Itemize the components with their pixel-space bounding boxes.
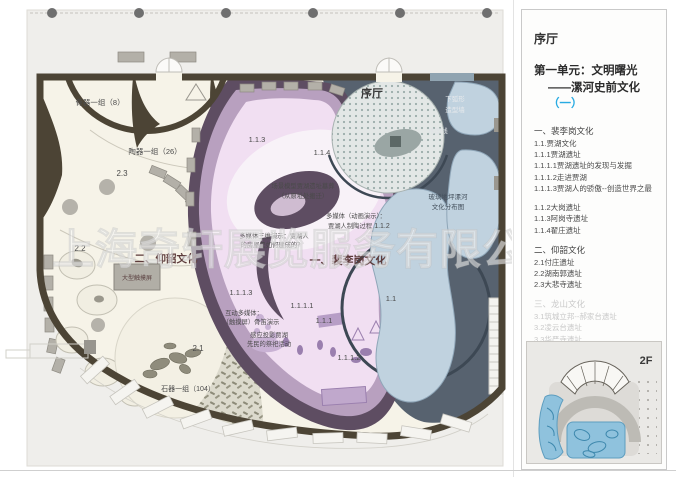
- label-2-3: 2.3: [116, 169, 128, 178]
- unit-title-line1: 第一单元：文明曙光: [534, 63, 658, 80]
- label-peiligang-culture: 一、裴李岗文化: [310, 253, 387, 267]
- legend-item: 一、裴李岗文化: [534, 125, 658, 138]
- unit-title-text: ——漯河史前文化: [548, 82, 640, 94]
- label-bone-group: 骨器一组（8）: [75, 97, 124, 107]
- legend-item: 三、龙山文化: [534, 298, 658, 311]
- label-stone-group: 石器一组（104）: [161, 384, 215, 393]
- label-touchscreen: 大型触摸屏: [122, 274, 152, 282]
- key-plan-drawing: 2F: [527, 342, 661, 461]
- label-ground-line: 地面线: [428, 126, 448, 135]
- label-sensing-1: 感应投影贾湖: [250, 330, 288, 339]
- key-plan-inset: 2F: [526, 341, 662, 464]
- legend-item: 2.2湖南郭遗址: [534, 268, 658, 279]
- inset-floor-label: 2F: [640, 355, 653, 367]
- floor-plan-drawing: 骨器一组（8） 陶器一组（26） 2.3 2.2 二、仰韶文化 大型触摸屏 2.…: [0, 0, 514, 477]
- label-1-1-1-1: 1.1.1.1: [291, 301, 314, 310]
- label-mm-3d-2: 的房屋是如何建成的？: [241, 240, 304, 249]
- legend-panel: 序厅 第一单元：文明曙光 ——漯河史前文化（一） 一、裴李岗文化 1.1.贾湖文…: [521, 9, 667, 470]
- label-mm-anim-1: 多媒体（动画演示）：: [326, 211, 386, 220]
- legend-item: 1.1.1.3贾湖人的骄傲--创造世界之最: [534, 183, 658, 194]
- label-interactive-1: 互动多媒体：: [225, 308, 263, 317]
- legend-item: 1.1.1.2走进贾湖: [534, 172, 658, 183]
- legend-item: 1.1.4翟庄遗址: [534, 225, 658, 236]
- unit-title-part-number: （一）: [548, 98, 583, 110]
- legend-item: 3.2凌云台遗址: [534, 322, 658, 333]
- label-arc-wall-2: 造型墙: [445, 105, 465, 114]
- legend-item: 2.1付庄遗址: [534, 257, 658, 268]
- label-mm-anim-2: 贾湖人制陶过程: [328, 221, 373, 230]
- label-glass-floor-2: 文化分布图: [432, 202, 465, 211]
- label-1-1-4: 1.1.4: [314, 148, 331, 157]
- floor-plan: 骨器一组（8） 陶器一组（26） 2.3 2.2 二、仰韶文化 大型触摸屏 2.…: [0, 0, 514, 477]
- label-1-1-2: 1.1.2: [374, 223, 390, 230]
- label-sensing-2: 先民的祭祀活动: [247, 339, 291, 348]
- label-foyer: 序厅: [361, 86, 383, 100]
- legend-item: 1.1.1贾湖遗址: [534, 149, 658, 160]
- inset-highlight-bottom: [567, 422, 625, 458]
- legend-item: 3.1筑城立邦--郝家台遗址: [534, 311, 658, 322]
- label-1-1-1-3: 1.1.1.3: [230, 288, 253, 297]
- label-1-1-1-2: 1.1.1.2: [338, 353, 361, 362]
- label-pottery-group: 陶器一组（26）: [128, 146, 181, 156]
- legend-item: 1.1.3阿岗寺遗址: [534, 213, 658, 224]
- label-mm-3d-1: 多媒体三维演示：贾湖人: [239, 231, 309, 240]
- legend-item: 1.1.2大岗遗址: [534, 202, 658, 213]
- label-yangshao-culture: 二、仰韶文化: [135, 252, 198, 265]
- label-glass-floor-1: 玻璃地坪漯河: [429, 192, 469, 201]
- label-scene-model-1: 场景模型贾湖遗址墓葬: [272, 181, 335, 190]
- label-scene-model-2: （从原址处搬迁）: [278, 191, 328, 200]
- legend-list: 一、裴李岗文化 1.1.贾湖文化 1.1.1贾湖遗址 1.1.1.1贾湖遗址的发…: [534, 125, 658, 356]
- legend-hall-title: 序厅: [534, 30, 658, 47]
- legend-item: 二、仰韶文化: [534, 244, 658, 257]
- unit-title-line2: ——漯河史前文化（一）: [534, 80, 658, 113]
- label-2-1: 2.1: [192, 344, 204, 353]
- label-interactive-2: （触摸屏）骨笛演示: [223, 317, 280, 326]
- legend-item: 1.1.贾湖文化: [534, 138, 658, 149]
- legend-item: 2.3大悲寺遗址: [534, 279, 658, 290]
- label-1-1-1: 1.1.1: [316, 316, 333, 325]
- label-1-1: 1.1: [386, 294, 396, 303]
- legend-item: 1.1.1.1贾湖遗址的发现与发掘: [534, 160, 658, 171]
- sheet-divider: [513, 0, 514, 477]
- label-arc-wall-1: 下弧形: [445, 94, 465, 103]
- label-1-1-3: 1.1.3: [249, 135, 266, 144]
- bottom-rule: [0, 470, 676, 471]
- foyer-circle: [332, 81, 444, 193]
- label-2-2: 2.2: [74, 244, 86, 253]
